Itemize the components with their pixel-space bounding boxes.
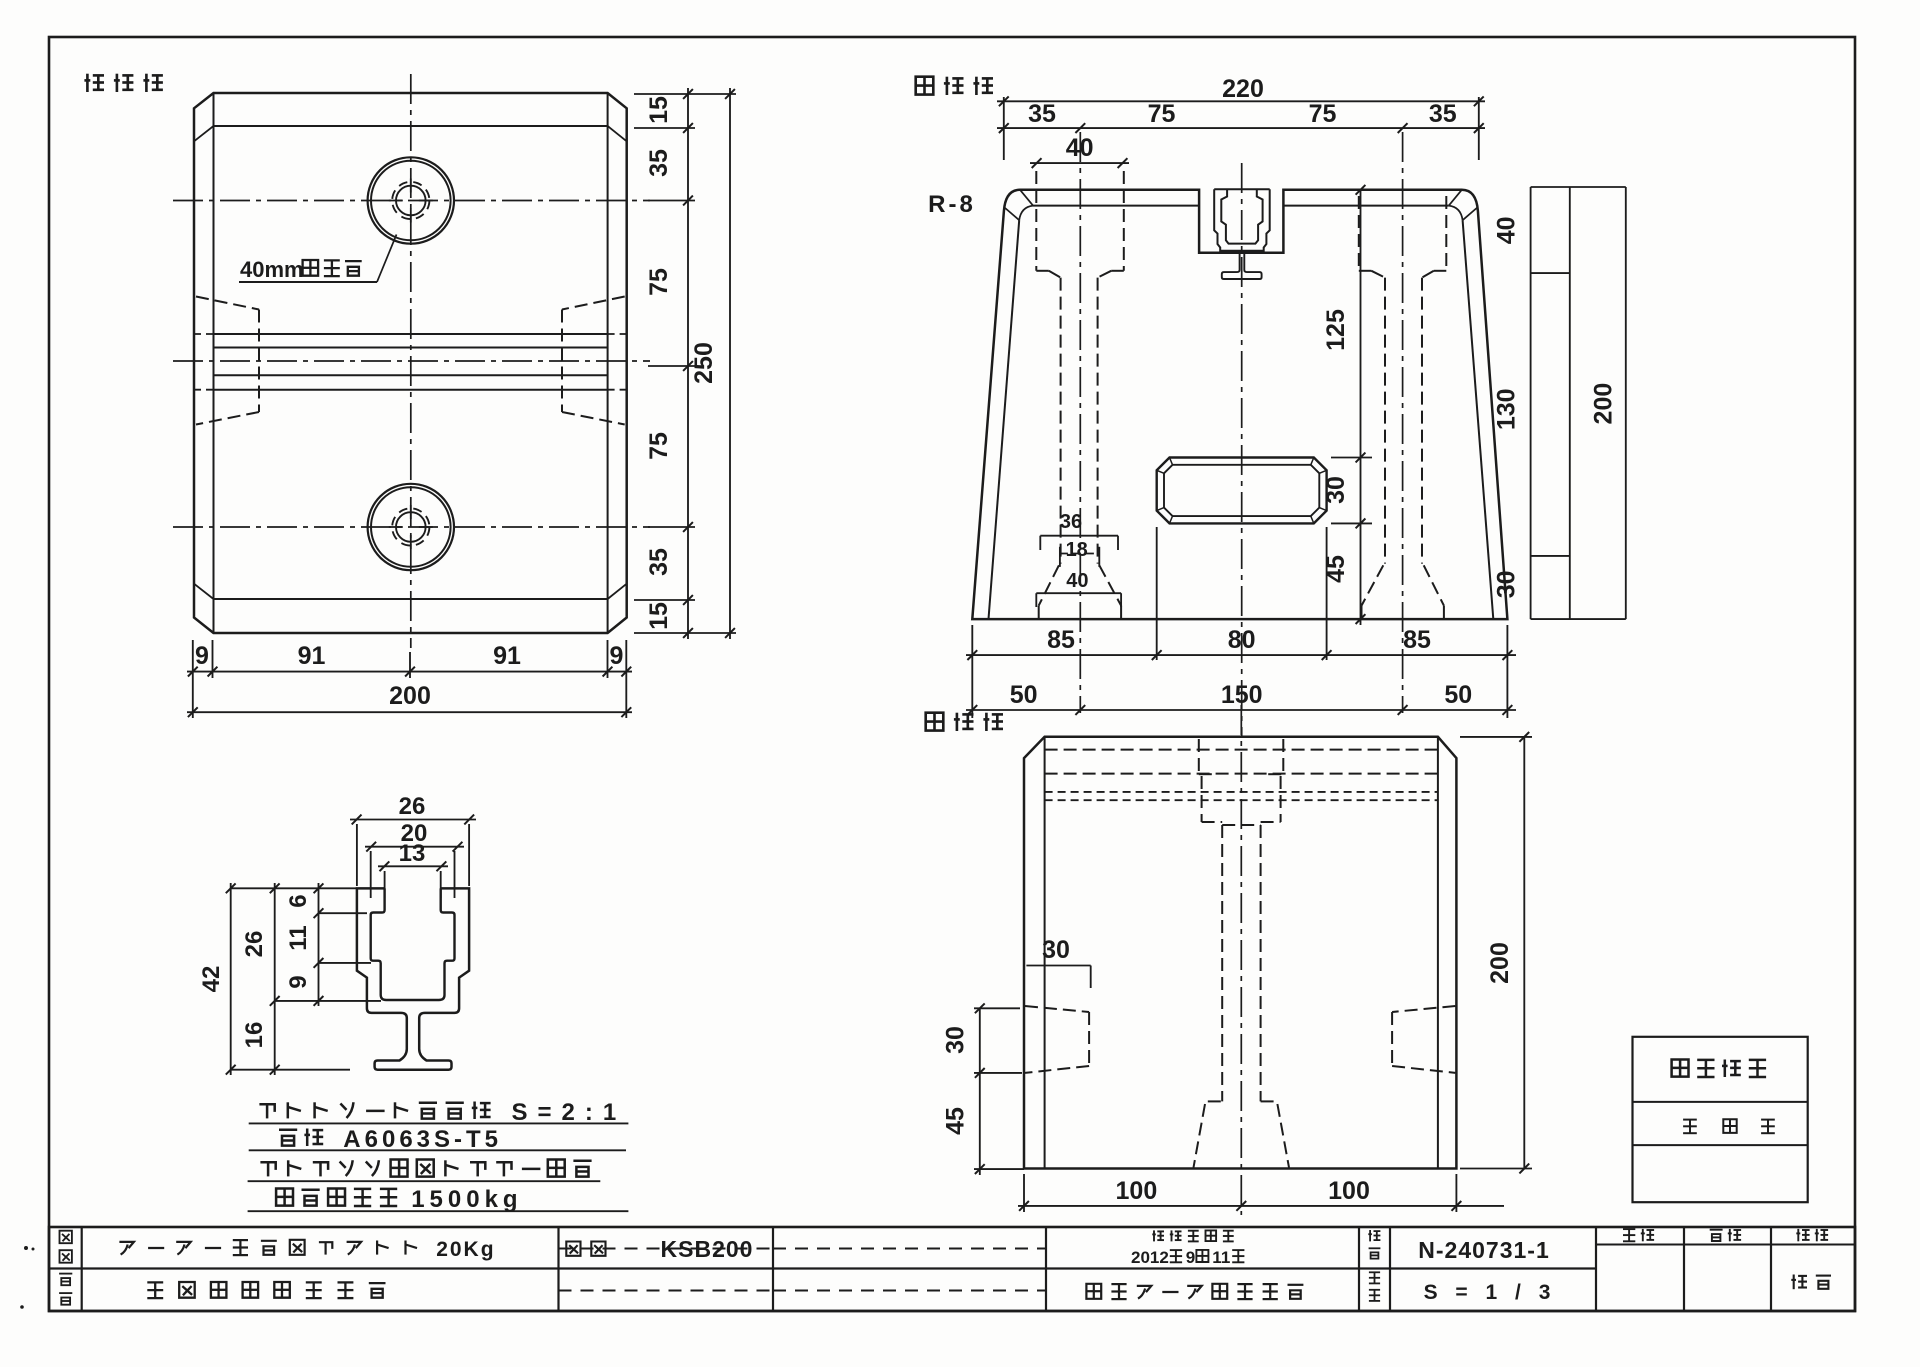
svg-text:11: 11 [1212,1248,1230,1267]
svg-text:75: 75 [645,432,673,460]
svg-text:50: 50 [1444,681,1472,709]
svg-text:80: 80 [1228,626,1256,654]
svg-text:250: 250 [690,342,718,384]
svg-text:40mm: 40mm [240,257,304,282]
svg-text:6: 6 [285,894,312,907]
svg-text:36: 36 [1060,511,1082,533]
svg-text:KSB200: KSB200 [661,1236,754,1262]
svg-text:91: 91 [493,642,521,670]
svg-text:40: 40 [1066,134,1094,162]
svg-text:1500kg: 1500kg [411,1186,522,1213]
svg-text:35: 35 [1028,100,1056,128]
svg-text:50: 50 [1010,681,1038,709]
svg-text:9: 9 [1186,1248,1195,1267]
svg-text:85: 85 [1047,626,1075,654]
svg-text:45: 45 [942,1107,970,1135]
svg-text:9: 9 [610,642,624,670]
svg-text:A6063S-T5: A6063S-T5 [343,1126,502,1153]
svg-text:130: 130 [1493,388,1521,430]
svg-text:150: 150 [1221,681,1263,709]
svg-text:40: 40 [1066,570,1088,592]
svg-text:75: 75 [645,268,673,296]
svg-text:125: 125 [1322,309,1350,351]
svg-text:30: 30 [1493,570,1521,598]
svg-text:9: 9 [285,975,312,988]
svg-text:9: 9 [195,642,209,670]
svg-text:100: 100 [1328,1177,1370,1205]
svg-text:200: 200 [1589,383,1617,425]
svg-text:40: 40 [1493,216,1521,244]
svg-text:30: 30 [1322,476,1350,504]
svg-text:11: 11 [285,925,312,950]
svg-text:26: 26 [399,793,426,820]
svg-text:35: 35 [645,548,673,576]
svg-text:16: 16 [241,1022,268,1049]
svg-text:13: 13 [399,840,426,867]
svg-text:2012: 2012 [1131,1248,1169,1267]
svg-text:R-8: R-8 [928,191,976,218]
svg-text:30: 30 [942,1026,970,1054]
svg-text:18: 18 [1066,539,1088,561]
svg-text:20Kg: 20Kg [436,1238,495,1261]
svg-text:35: 35 [1429,100,1457,128]
svg-text:35: 35 [645,149,673,177]
svg-text:200: 200 [1486,942,1514,984]
svg-text:220: 220 [1222,75,1264,103]
svg-text:26: 26 [241,931,268,958]
svg-text:91: 91 [298,642,326,670]
svg-text:S = 1 / 3: S = 1 / 3 [1424,1281,1557,1304]
svg-text:100: 100 [1116,1177,1158,1205]
svg-text:N-240731-1: N-240731-1 [1418,1237,1549,1263]
svg-text:75: 75 [1148,100,1176,128]
svg-text:S=2:1: S=2:1 [512,1099,627,1126]
svg-text:30: 30 [1042,936,1070,964]
svg-text:200: 200 [389,682,431,710]
svg-text:85: 85 [1403,626,1431,654]
svg-text:15: 15 [645,602,673,630]
svg-text:15: 15 [645,96,673,124]
svg-text:75: 75 [1309,100,1337,128]
svg-text:42: 42 [198,966,225,993]
